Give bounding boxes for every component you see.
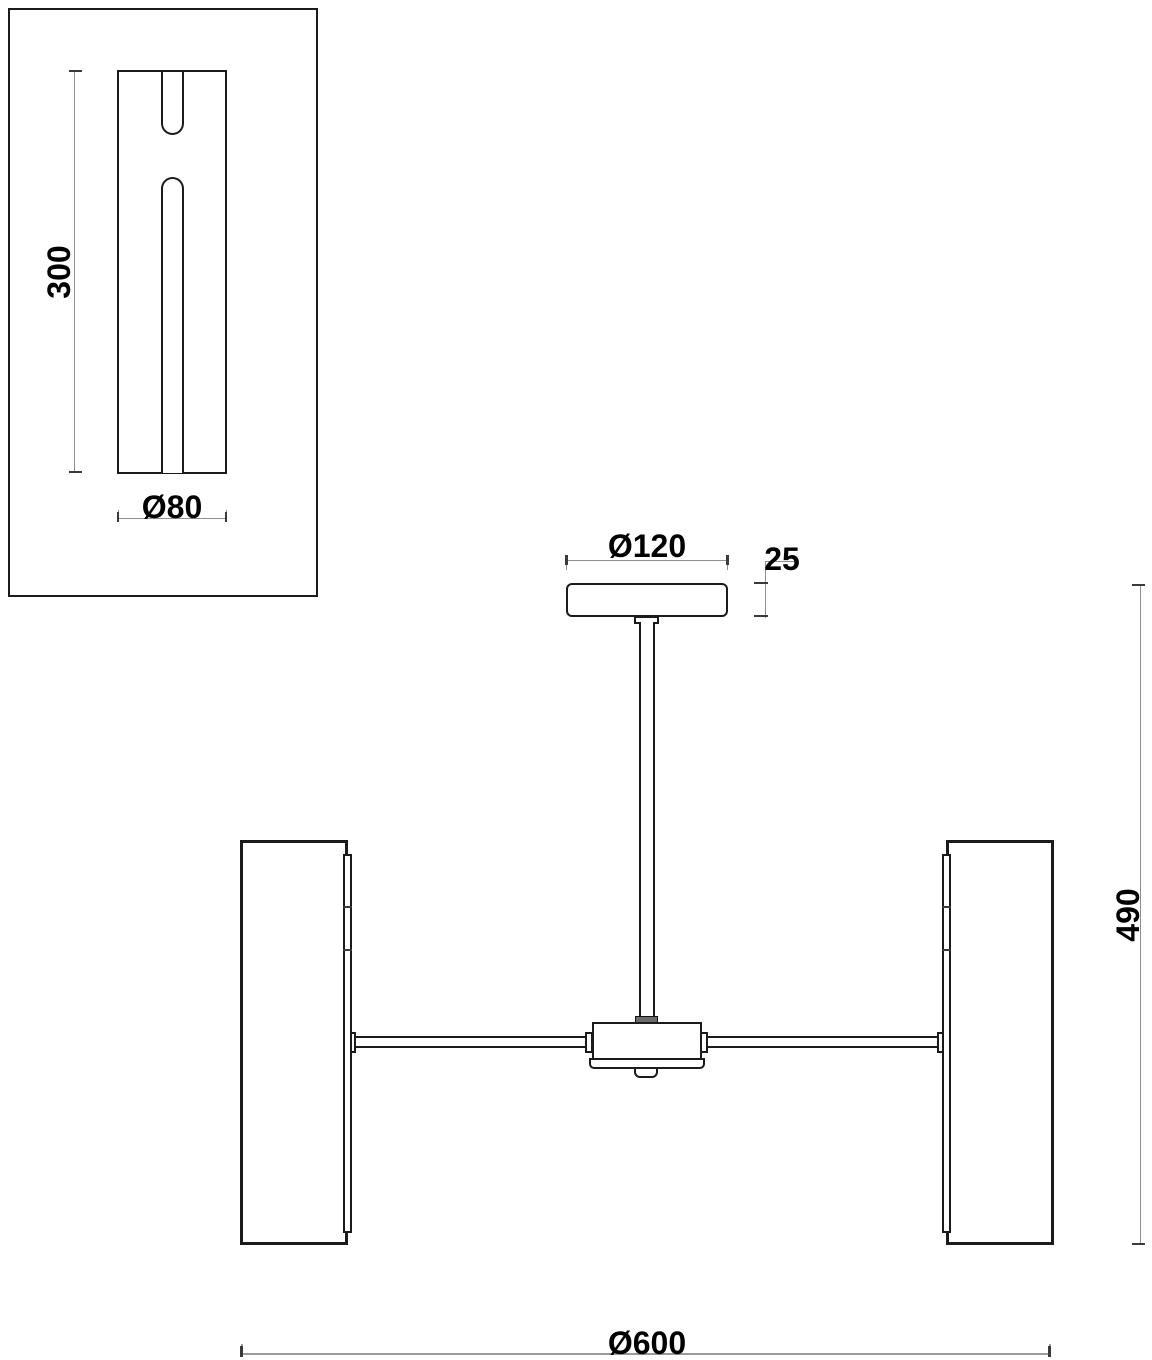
dim-tick	[69, 471, 82, 473]
detail-tube-center-slot	[161, 177, 184, 473]
left-shade-inner-edge	[343, 854, 352, 1233]
dim-label-detail-diameter: Ø80	[142, 491, 202, 523]
right-arm	[707, 1036, 938, 1048]
dim-tick	[240, 1346, 243, 1357]
dim-tick	[1132, 1243, 1145, 1245]
right-shade-edge-joint	[942, 949, 951, 951]
dim-label-canopy-diameter: Ø120	[608, 530, 686, 562]
dim-tick	[69, 70, 82, 72]
left-shade-edge-joint	[343, 906, 352, 908]
technical-drawing-canvas: 300 Ø80 Ø120 25 490	[0, 0, 1152, 1360]
left-shade	[240, 840, 348, 1245]
detail-tube-top-slot	[161, 72, 184, 135]
hub-body	[592, 1022, 702, 1060]
dim-tick	[565, 555, 568, 565]
left-shade-edge-joint	[343, 949, 352, 951]
arm-sleeve-hub-left	[585, 1032, 593, 1053]
left-arm	[356, 1036, 587, 1048]
arm-sleeve-hub-right	[700, 1032, 708, 1053]
dim-tick	[726, 555, 729, 565]
right-shade	[946, 840, 1054, 1245]
dim-label-detail-length: 300	[43, 245, 75, 298]
dim-tick	[1132, 584, 1145, 586]
dim-label-overall-height: 490	[1112, 888, 1144, 941]
dim-tick	[754, 582, 768, 584]
stem-rod	[639, 622, 655, 1018]
dim-label-overall-diameter: Ø600	[608, 1327, 686, 1359]
right-shade-inner-edge	[942, 854, 951, 1233]
ceiling-canopy	[566, 583, 728, 617]
dim-tick	[117, 512, 119, 522]
dim-label-canopy-height: 25	[764, 543, 800, 575]
dim-tick	[225, 512, 227, 522]
dim-tick	[1048, 1346, 1051, 1357]
hub-bottom-knob	[634, 1067, 658, 1078]
right-shade-edge-joint	[942, 906, 951, 908]
dim-tick	[754, 615, 768, 617]
